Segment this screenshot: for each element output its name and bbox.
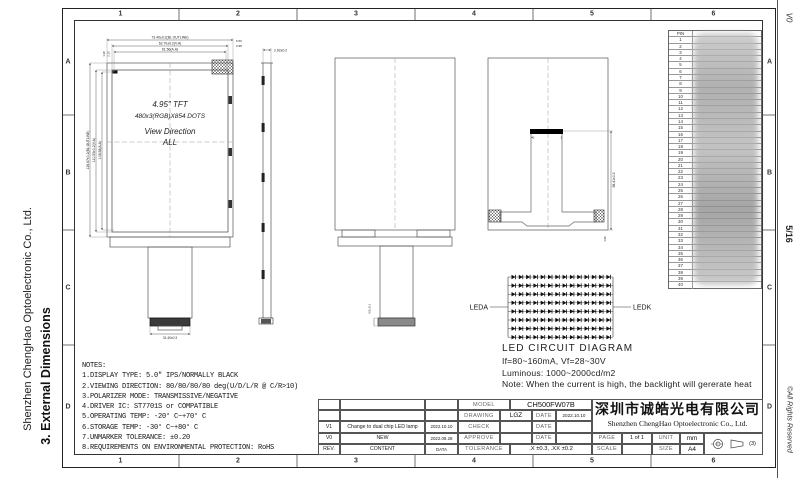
svg-text:98.41±0.3: 98.41±0.3 (612, 172, 616, 187)
size-label: SIZE (652, 444, 680, 455)
side-view (259, 48, 273, 324)
pin-number-cell: 20 (669, 157, 693, 162)
notes-item: 4.DRIVER IC: ST7701S or COMPATIBLE (82, 402, 332, 412)
led-diagram-title: LED CIRCUIT DIAGRAM (502, 343, 772, 354)
pin-number-cell: 7 (669, 75, 693, 80)
pin-number-cell: 30 (669, 219, 693, 224)
pin-number-cell: 2 (669, 44, 693, 49)
pin-number-cell: 40 (669, 282, 693, 288)
unit-label: UNIT (652, 433, 680, 444)
front-view-direction: View Direction (145, 127, 197, 136)
revision-cell: V0 (318, 433, 340, 444)
revision-tag: V0 (785, 3, 794, 33)
page-number: 5/16 (784, 214, 794, 254)
led-diagram-text: LED CIRCUIT DIAGRAM If=80~160mA, Vf=28~3… (502, 343, 772, 389)
revision-cell: 2022.10.10 (425, 421, 458, 432)
led-cathode-label: LEDK (633, 305, 652, 312)
front-view (90, 38, 233, 335)
pin-number-cell: 13 (669, 113, 693, 118)
pin-number-cell: 3 (669, 50, 693, 55)
projection-cell: (3) (704, 433, 763, 455)
revision-cell: V1 (318, 421, 340, 432)
tolerance-value: .X ±0.3, .XX ±0.2 (510, 444, 592, 455)
company-name-cn: 深圳市诚皓光电有限公司 (595, 403, 760, 418)
pin-number-cell: 5 (669, 62, 693, 67)
notes-item: 5.OPERATING TEMP: -20° C~+70° C (82, 412, 332, 422)
revision-cell: 2022.09.28 (425, 433, 458, 444)
front-hatch-block (212, 60, 233, 74)
section-title: 3. External Dimensions (39, 286, 53, 466)
back-hatch-block-left (489, 210, 501, 222)
pin-number-cell: 35 (669, 251, 693, 256)
front-view-title: 4.95" TFT (152, 100, 188, 109)
revision-cell (425, 410, 458, 421)
size-value: A4 (680, 444, 704, 455)
svg-text:31.40±0.3: 31.40±0.3 (163, 336, 177, 340)
pin-number-cell: 14 (669, 119, 693, 124)
notes-item: 1.DISPLAY TYPE: 5.0" IPS/NORMALLY BLACK (82, 371, 332, 381)
drawing-value: LGZ (500, 410, 532, 421)
pin-number-cell: 21 (669, 163, 693, 168)
svg-text:108.58(A.A): 108.58(A.A) (98, 141, 102, 159)
company-block: 深圳市诚皓光电有限公司 Shenzhen ChengHao Optoelectr… (592, 399, 763, 433)
revision-cell: NEW (340, 433, 425, 444)
pin-number-cell: 1 (669, 37, 693, 42)
page-value: 1 of 1 (622, 433, 652, 444)
projection-label: (3) (749, 441, 756, 447)
notes-item: 6.STORAGE TEMP: -30° C~+80° C (82, 423, 332, 433)
right-margin-divider (777, 0, 778, 478)
side-view-thickness-dim: 2.92±0.2 (274, 49, 287, 53)
pin-number-cell: 39 (669, 276, 693, 281)
pin-number-cell: 12 (669, 106, 693, 111)
pin-number-cell: 6 (669, 69, 693, 74)
notes-title: NOTES: (82, 361, 332, 371)
pin-number-cell: 36 (669, 257, 693, 262)
third-angle-projection-icon (711, 437, 747, 451)
notes-item: 2.VIEWING DIRECTION: 80/80/80/80 deg(U/D… (82, 382, 332, 392)
revision-cell (425, 399, 458, 410)
revision-cell (318, 410, 340, 421)
back-hatch-block-right (594, 210, 604, 222)
mid-connector-dim: 4.5±0.1 (368, 304, 372, 314)
led-spec-luminous: Luminous: 1000~2000cd/m2 (502, 368, 772, 378)
pin-number-cell: 23 (669, 175, 693, 180)
approve-label: APPROVE (458, 433, 500, 444)
pin-number-cell: 38 (669, 270, 693, 275)
notes-block: NOTES:1.DISPLAY TYPE: 5.0" IPS/NORMALLY … (82, 361, 332, 454)
svg-text:73.40±0.2(BL OUTLINE): 73.40±0.2(BL OUTLINE) (152, 36, 189, 40)
check-label: CHECK (458, 421, 500, 432)
check-date-value (556, 421, 592, 432)
led-spec-current: If=80~160mA, Vf=28~30V (502, 356, 772, 366)
svg-text:126.67±0.2(BL OUTLINE): 126.67±0.2(BL OUTLINE) (86, 131, 90, 170)
svg-text:110.53±0.2(V.A): 110.53±0.2(V.A) (92, 138, 96, 162)
pin-number-cell: 15 (669, 125, 693, 130)
back-view-right (488, 58, 613, 230)
pin-number-cell: 10 (669, 94, 693, 99)
pin-number-cell: 16 (669, 132, 693, 137)
company-name-en: Shenzhen ChengHao Optoelectronic Co., Lt… (608, 420, 748, 428)
approve-value (500, 433, 532, 444)
led-circuit-grid (508, 275, 613, 340)
pin-number-cell: 17 (669, 138, 693, 143)
pin-table-redacted-area (694, 33, 758, 285)
pin-number-cell: 33 (669, 238, 693, 243)
zif-connector (530, 129, 563, 134)
revision-cell: CONTENT (340, 444, 425, 455)
svg-text:62.70±0.2(V.A): 62.70±0.2(V.A) (159, 42, 181, 46)
front-view-direction-all: ALL (162, 138, 177, 147)
pin-number-cell: 4 (669, 56, 693, 61)
notes-item: 3.POLARIZER MODE: TRANSMISSIVE/NEGATIVE (82, 392, 332, 402)
svg-text:0.98: 0.98 (236, 44, 242, 48)
notes-item: 8.REQUIREMENTS ON ENVIRONMENTAL PROTECTI… (82, 443, 332, 453)
pin-number-cell: 37 (669, 263, 693, 268)
svg-text:61.56(A.A): 61.56(A.A) (162, 48, 178, 52)
pin-number-cell: 22 (669, 169, 693, 174)
left-margin-company: Shenzhen ChengHao Optoelectronic Co., Lt… (22, 189, 34, 449)
approve-date-label: DATE (532, 433, 556, 444)
check-date-label: DATE (532, 421, 556, 432)
pin-number-cell: 19 (669, 150, 693, 155)
pin-number-cell: 25 (669, 188, 693, 193)
scale-label: SCALE (592, 444, 622, 455)
model-label: MODEL (458, 399, 510, 410)
svg-text:1.80: 1.80 (603, 236, 607, 242)
front-view-labels: 4.95" TFT 480x3(RGB)X854 DOTS View Direc… (86, 36, 242, 340)
page-label: PAGE (592, 433, 622, 444)
svg-text:6.50: 6.50 (236, 39, 242, 43)
front-view-resolution: 480x3(RGB)X854 DOTS (135, 113, 206, 120)
svg-text:1.38: 1.38 (102, 51, 106, 57)
svg-text:2.15: 2.15 (107, 51, 111, 57)
revision-cell: Change to dual chip LED lamp (340, 421, 425, 432)
led-anode-label: LEDA (470, 305, 489, 312)
pin-number-cell: 8 (669, 81, 693, 86)
pin-number-cell: 26 (669, 194, 693, 199)
mid-fpc-connector (378, 318, 415, 326)
front-fpc-connector (150, 318, 190, 326)
notes-item: 7.UNMARKER TOLERANCE: ±0.20 (82, 433, 332, 443)
copyright-text: ©All Rights Reserved (786, 365, 793, 475)
drawing-date-label: DATE (532, 410, 556, 421)
unit-value: mm (680, 433, 704, 444)
revision-cell (340, 399, 425, 410)
drawing-date-value: 2022.10.10 (556, 410, 592, 421)
svg-text:40: 40 (531, 136, 535, 140)
revision-cell (318, 399, 340, 410)
check-value (500, 421, 532, 432)
pin-number-cell: 32 (669, 232, 693, 237)
pin-number-cell: PIN (669, 31, 693, 36)
pin-number-cell: 27 (669, 201, 693, 206)
approve-date-value (556, 433, 592, 444)
pin-number-cell: 29 (669, 213, 693, 218)
pin-number-cell: 28 (669, 207, 693, 212)
pin-number-cell: 18 (669, 144, 693, 149)
drawing-label: DRAWING (458, 410, 500, 421)
led-note: Note: When the current is high, the back… (502, 379, 772, 389)
revision-cell (340, 410, 425, 421)
model-value: CH500FW07B (510, 399, 592, 410)
tolerance-label: TOLERANCE (458, 444, 510, 455)
datasheet-page: Shenzhen ChengHao Optoelectronic Co., Lt… (0, 0, 800, 478)
pin-number-cell: 34 (669, 245, 693, 250)
revision-cell: DATA (425, 444, 458, 455)
pin-number-cell: 24 (669, 182, 693, 187)
pin-number-cell: 31 (669, 226, 693, 231)
scale-value (622, 444, 652, 455)
pin-number-cell: 11 (669, 100, 693, 105)
back-view-mid (335, 58, 455, 326)
pin-number-cell: 9 (669, 88, 693, 93)
revision-cell: REV. (318, 444, 340, 455)
